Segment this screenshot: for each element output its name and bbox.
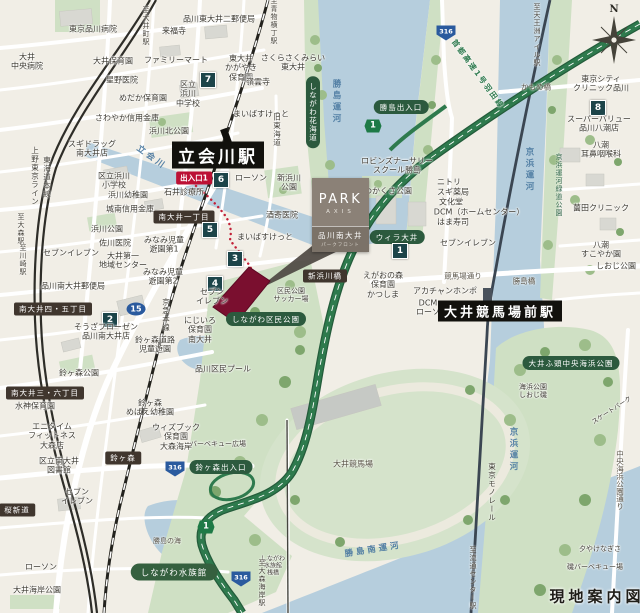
park-keihin-greenway: 京浜運河緑道公園 [554,153,564,217]
poi-store: まいばすけっと [237,232,293,241]
poi-nursery: 水神保育園 [15,401,55,410]
shield-316: 316 [437,26,456,41]
water-katsushima-no-umi: 勝島の海 [153,536,181,546]
spot-badge-5: 5 [202,222,218,238]
poi-center: 大井第一地域センター [99,252,147,271]
poi-store: スーパーバリュー品川八潮店 [567,115,631,134]
pill-oi-futo-kaihin-park: 大井ふ頭中央海浜公園 [523,356,620,370]
water-katsushima-minami-canal: 勝島南運河 [344,539,403,560]
pill-shinagawa-aquarium: しながわ水族館 [131,564,218,581]
dir-omori: 至大森駅 [16,213,26,245]
poi-store: セブンイレブン [43,248,99,257]
poi-skatepark: スケートパーク [591,395,633,426]
pill-sakura-shindo: 桜新道 [0,504,35,517]
poi-oi-racecourse: 大井競馬場 [333,459,373,470]
poi-clinic: 石井診療所 [164,187,204,196]
poi-park: 新浜川公園 [277,174,301,193]
shield-route-15: 15 [127,303,146,316]
road-kyu-tokaido: 旧東海道 [272,113,283,147]
rail-tokyo-monorail: 東京モノレール [487,462,498,522]
poi-park: みなみ児童遊園第2 [143,268,183,287]
rail-keikyu-line: 京急本線 [161,298,172,332]
road-katsushima-bridge: 勝島橋 [513,276,536,287]
poi-library: 区立南大井図書館 [39,457,79,476]
poi-temple: 嶺雲寺 [246,77,270,86]
poi-store: スギ薬局 [437,187,469,196]
poi-bbq: バーベキュー広場 [190,440,246,448]
shield-316b: 316 [166,462,185,477]
park-axis-brand-box: PARK AXIS 品川南大井 パークフロント [312,178,369,252]
poi-store: セブンイレブン [440,238,496,247]
poi-store: アカチャンホンポ [413,286,477,295]
poi-clinic: 東京シティクリニック品川 [573,75,629,94]
poi-park: 浜川北公園 [149,126,189,135]
brand-axis-wordmark: AXIS [312,209,369,215]
road-chuo-kaihin-dori: 中央海浜公園通り [615,450,626,510]
poi-kindergarten: 浜川幼稚園 [108,190,148,199]
dir-ryutsu-center: 至流通センター駅 [468,546,478,610]
water-tachiaigawa: 立会川 [135,142,170,172]
poi-clinic: 酒寄医院 [266,210,298,219]
spot-badge-6: 6 [213,172,229,188]
poi-beach: 夕やけなぎさ [579,545,621,553]
dir-tennozu-isle: 至天王洲アイル駅 [532,3,542,67]
poi-park: 大井海岸公園 [13,585,61,594]
map-label-layer: 至大井町駅東京品川病院品川東大井二郵便局来福寺大井中央病院大井保育園ファミリーマ… [0,0,640,613]
poi-restaurant: はま寿司 [437,217,469,226]
poi-park: 鈴ヶ森道路児童遊園 [135,336,175,355]
pill-minamioi-45chome: 南大井四・五丁目 [14,303,92,316]
rail-ueno-tokyo-line: 上野東京ライン [30,146,41,206]
pill-hanakaido: しながわ花海道 [306,76,320,148]
poi-store: 文化堂 [439,197,463,206]
poi-clinic: 八潮耳鼻咽喉科 [581,141,621,160]
poi-school: 区立浜川小学校 [98,172,130,191]
road-kamome-bridge: かもめ橋 [521,82,551,93]
poi-store: DCM（ホームセンター） [434,207,524,216]
poi-nursery: にじいろ保育園南大井 [184,316,216,344]
pill-suzugamori: 鈴ヶ森 [105,452,141,465]
poi-park: わかくさ公園 [364,186,412,195]
property-name-plate: 品川南大井 パークフロント [312,226,369,252]
poi-school: 区立浜川中学校 [176,80,200,108]
road-shuto-expressway: 首都高速1号羽田線 [449,37,507,111]
pill-suzugamori-exit: 鈴ヶ森出入口 [190,460,253,474]
poi-store: セブンイレブン [61,488,93,507]
poi-bank: 城南信用金庫 [106,204,154,213]
dir-aomono-yokocho: 至青物横丁駅 [269,0,279,45]
poi-bank: さわやか信用金庫 [95,113,159,122]
exit-1-badge: 出入口1 [176,172,212,185]
poi-bbq: 磯バーベキュー場 [567,563,623,571]
pill-shinhamakawa-bridge: 新浜川橋 [303,270,347,283]
station-oi-keibajo-mae: 大井競馬場前駅 [438,301,562,322]
poi-park: 鈴ヶ森公園 [59,368,99,377]
pill-willa-oi: ウィラ大井 [370,230,425,244]
poi-clinic: 佐川医院 [99,238,131,247]
brand-park-wordmark: PARK [312,192,369,207]
poi-nursery: 大井保育園 [93,56,133,65]
poi-park: しおじ公園 [596,261,636,270]
poi-store: そうざフローゼン品川南大井店 [74,323,138,342]
poi-park: 浜川公園 [91,224,123,233]
dir-oimachi: 至大井町駅 [141,6,151,46]
map-title: 現地案内図 [549,586,640,607]
shield-316c: 316 [232,572,251,587]
property-subname: パークフロント [312,242,369,248]
location-guide-map: N 至大井町駅東京品川病院品川東大井二郵便局来福寺大井中央病院大井保育園ファミリ… [0,0,640,613]
pill-minamioi-36chome: 南大井三・六丁目 [6,387,84,400]
poi-post-office: 品川南大井郵便局 [41,281,105,290]
water-katsushima-canal: 勝島運河 [330,79,342,125]
spot-badge-1: 1 [392,243,408,259]
pill-kumin-park: しながわ区民公園 [226,312,306,326]
water-keihin-canal-s: 京浜運河 [507,427,519,473]
poi-school: ロビンズナーサリースクール勝島 [361,157,433,176]
poi-hospital: 東京品川病院 [69,24,117,33]
shield-shuto-1b: 1 [198,521,215,534]
pill-katsushima-exit: 勝島出入口 [374,100,429,114]
poi-post-office: 品川東大井二郵便局 [183,14,255,23]
poi-clinic: 星野医院 [106,75,138,84]
poi-kindergarten: 鈴ヶ森めばえ幼稚園 [126,399,174,418]
poi-store: スギドラッグ南大井店 [68,140,116,159]
dir-omori-kaigan: 至大森海岸駅 [257,559,267,607]
spot-badge-7: 7 [200,72,216,88]
water-keihin-canal-n: 京浜運河 [523,147,535,193]
road-keibajo-dori: 競馬場通り [444,271,482,282]
poi-nursery: えがおの森保育園かつしま [363,271,403,299]
dir-kawasaki: 至川崎駅 [18,244,28,276]
poi-beach: 海浜公園しおじ磯 [519,383,547,400]
rail-tokaido-line: 東海道本線 [42,156,53,199]
poi-clinic: 薗田クリニック [573,203,629,212]
poi-pool: 品川区民プール [195,364,251,373]
poi-hospital: 大井中央病院 [11,53,43,72]
poi-store: ローソン [235,173,267,182]
poi-nursery: めだか保育園 [119,93,167,102]
poi-store: ローソン [25,562,57,571]
property-name: 品川南大井 [312,230,369,241]
poi-store: ファミリーマート [144,55,208,64]
poi-soccer-field: 区民公園サッカー場 [274,287,309,304]
station-tachiaikawa: 立会川駅 [172,142,264,169]
poi-gym: エニタイムフィットネス大森店 [28,422,76,450]
poi-store: ニトリ [437,177,461,186]
poi-store: セブンイレブン [196,288,228,307]
poi-temple: 来福寺 [162,26,186,35]
shield-shuto-1: 1 [365,120,382,133]
poi-nursery: さくらさくみらい東大井 [261,54,325,73]
poi-nursery: 八潮すこやか園 [581,241,621,260]
spot-badge-3: 3 [227,251,243,267]
poi-park: みなみ児童遊園第1 [144,236,184,255]
